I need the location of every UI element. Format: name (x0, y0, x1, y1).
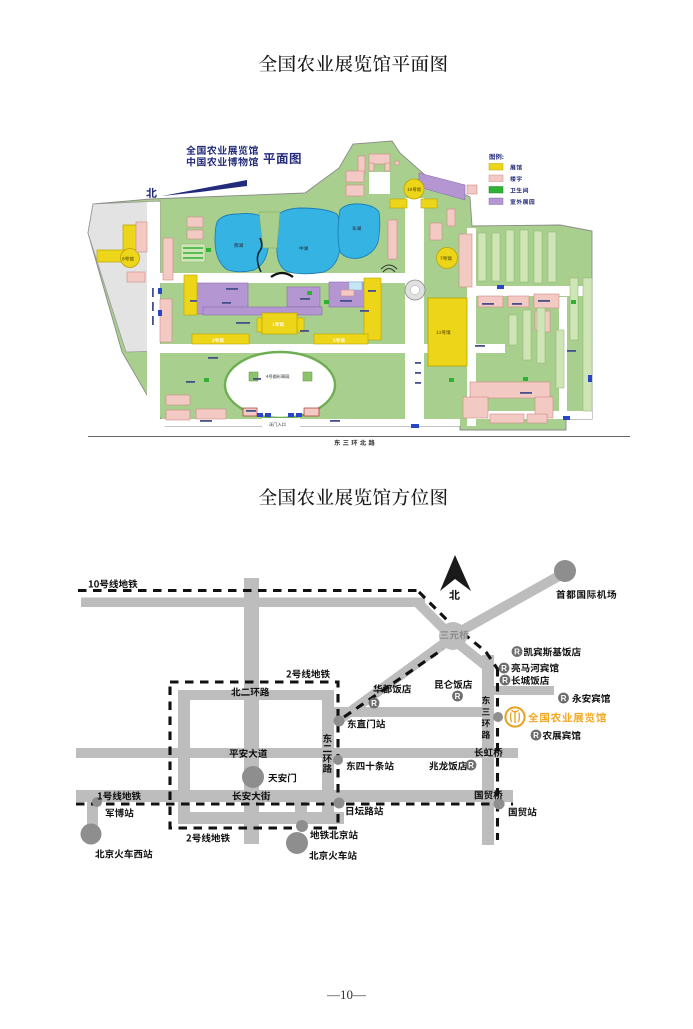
svg-text:R: R (502, 676, 508, 685)
svg-text:R: R (533, 731, 539, 740)
svg-text:R: R (514, 647, 520, 656)
svg-text:—10—: —10— (326, 987, 367, 1002)
svg-text:R: R (501, 664, 507, 673)
svg-text:R: R (455, 692, 461, 701)
svg-text:R: R (561, 694, 567, 703)
svg-text:R: R (468, 761, 474, 770)
svg-text:R: R (371, 699, 377, 708)
